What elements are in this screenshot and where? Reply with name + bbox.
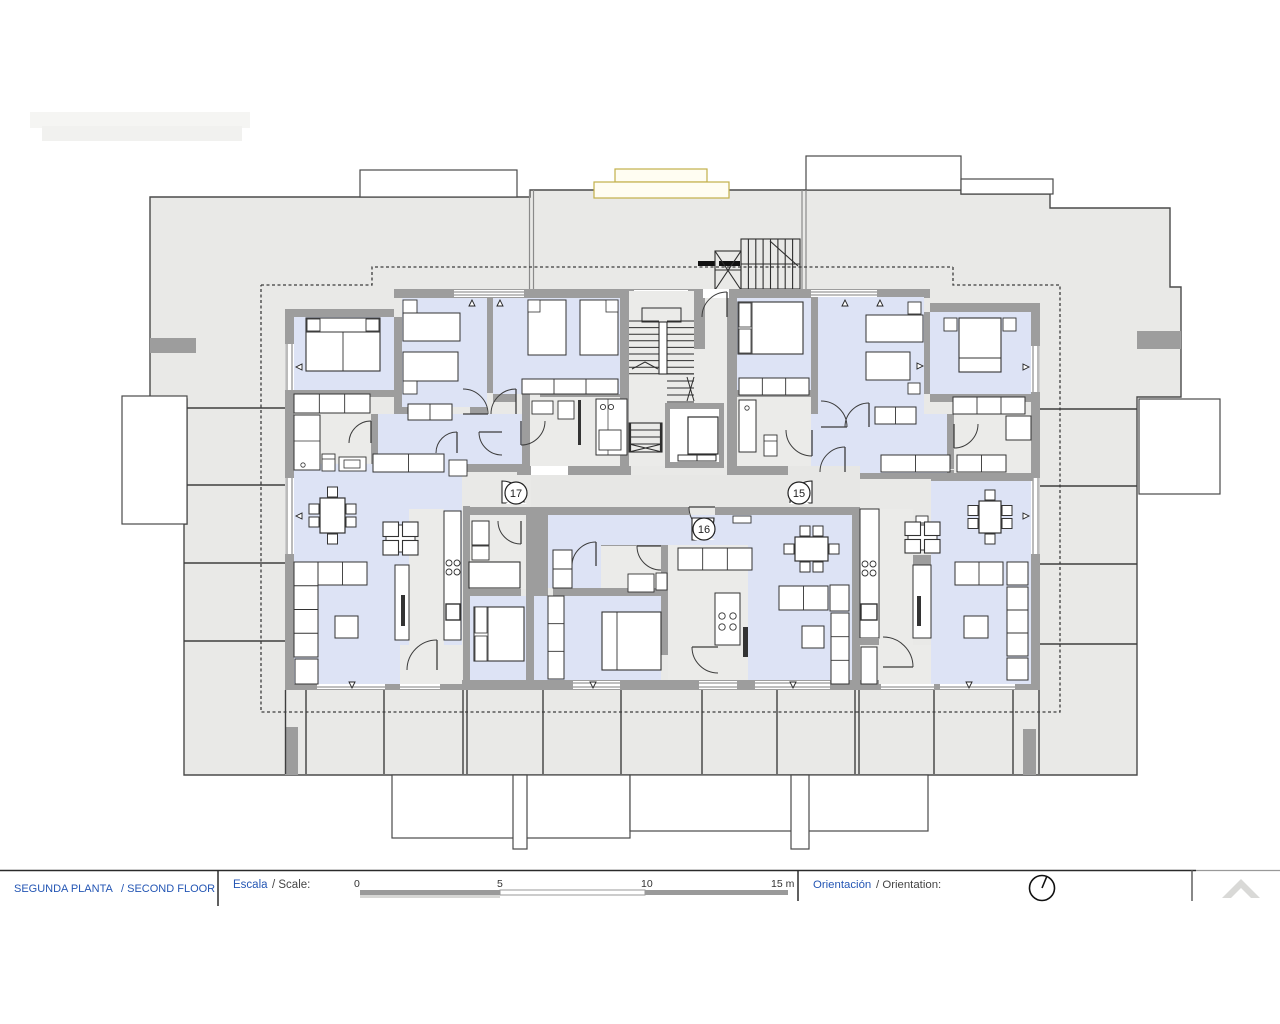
svg-text:15 m: 15 m [771, 878, 795, 890]
svg-text:16: 16 [698, 524, 710, 536]
svg-text:/ SECOND FLOOR: / SECOND FLOOR [121, 883, 215, 895]
svg-text:0: 0 [354, 878, 360, 890]
svg-text:10: 10 [641, 878, 653, 890]
svg-text:15: 15 [793, 488, 805, 500]
svg-text:/ Scale:: / Scale: [272, 879, 310, 891]
svg-text:Escala: Escala [233, 879, 268, 891]
svg-text:/ Orientation:: / Orientation: [876, 879, 941, 891]
svg-text:5: 5 [497, 878, 503, 890]
svg-text:Orientación: Orientación [813, 879, 871, 891]
svg-text:17: 17 [510, 488, 522, 500]
svg-text:SEGUNDA PLANTA: SEGUNDA PLANTA [14, 883, 113, 895]
